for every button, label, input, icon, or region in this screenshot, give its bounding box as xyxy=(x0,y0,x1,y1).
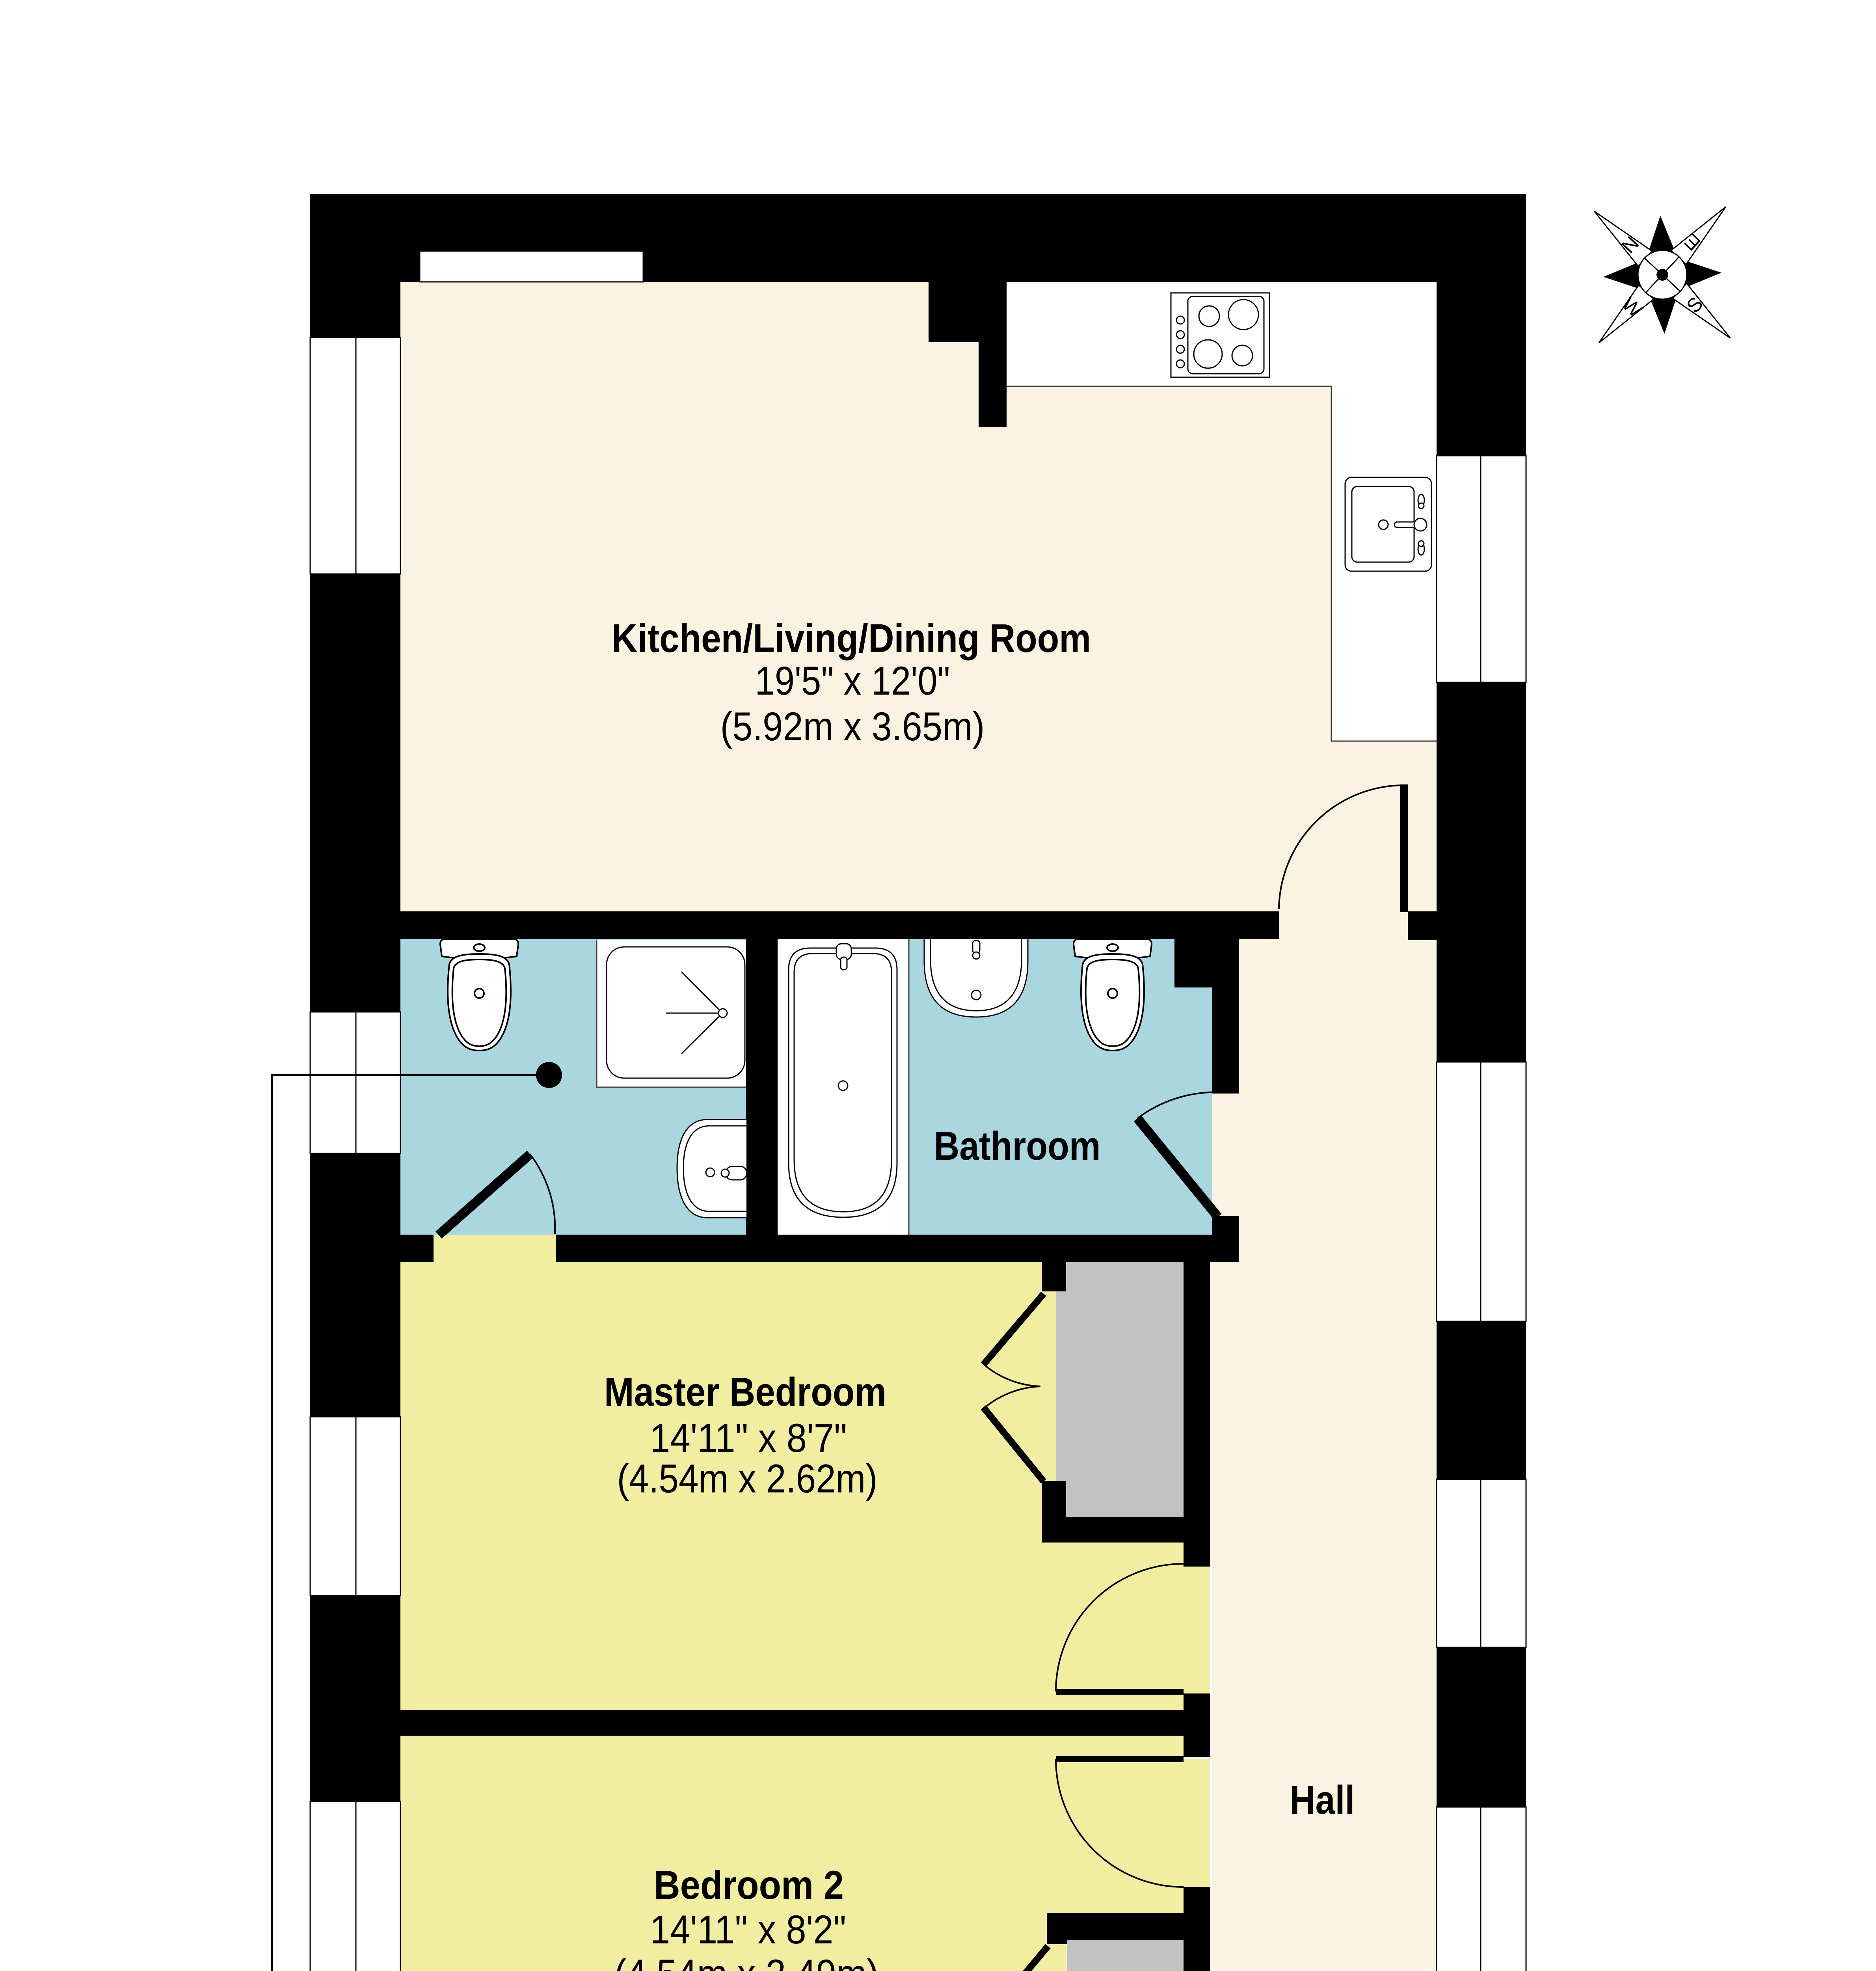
svg-text:Bedroom 2: Bedroom 2 xyxy=(654,1863,844,1908)
svg-text:14'11" x 8'2": 14'11" x 8'2" xyxy=(650,1907,846,1952)
svg-text:14'11" x 8'7": 14'11" x 8'7" xyxy=(650,1416,847,1461)
svg-text:(4.54m x 2.62m): (4.54m x 2.62m) xyxy=(617,1456,878,1501)
svg-text:Bathroom: Bathroom xyxy=(934,1123,1101,1168)
svg-text:(4.54m x 2.49m): (4.54m x 2.49m) xyxy=(614,1951,879,1971)
svg-text:Hall: Hall xyxy=(1290,1777,1355,1822)
svg-text:(5.92m x 3.65m): (5.92m x 3.65m) xyxy=(720,704,985,749)
svg-text:Master Bedroom: Master Bedroom xyxy=(604,1369,886,1414)
svg-text:Kitchen/Living/Dining Room: Kitchen/Living/Dining Room xyxy=(612,616,1091,661)
svg-text:19'5" x 12'0": 19'5" x 12'0" xyxy=(755,658,950,703)
